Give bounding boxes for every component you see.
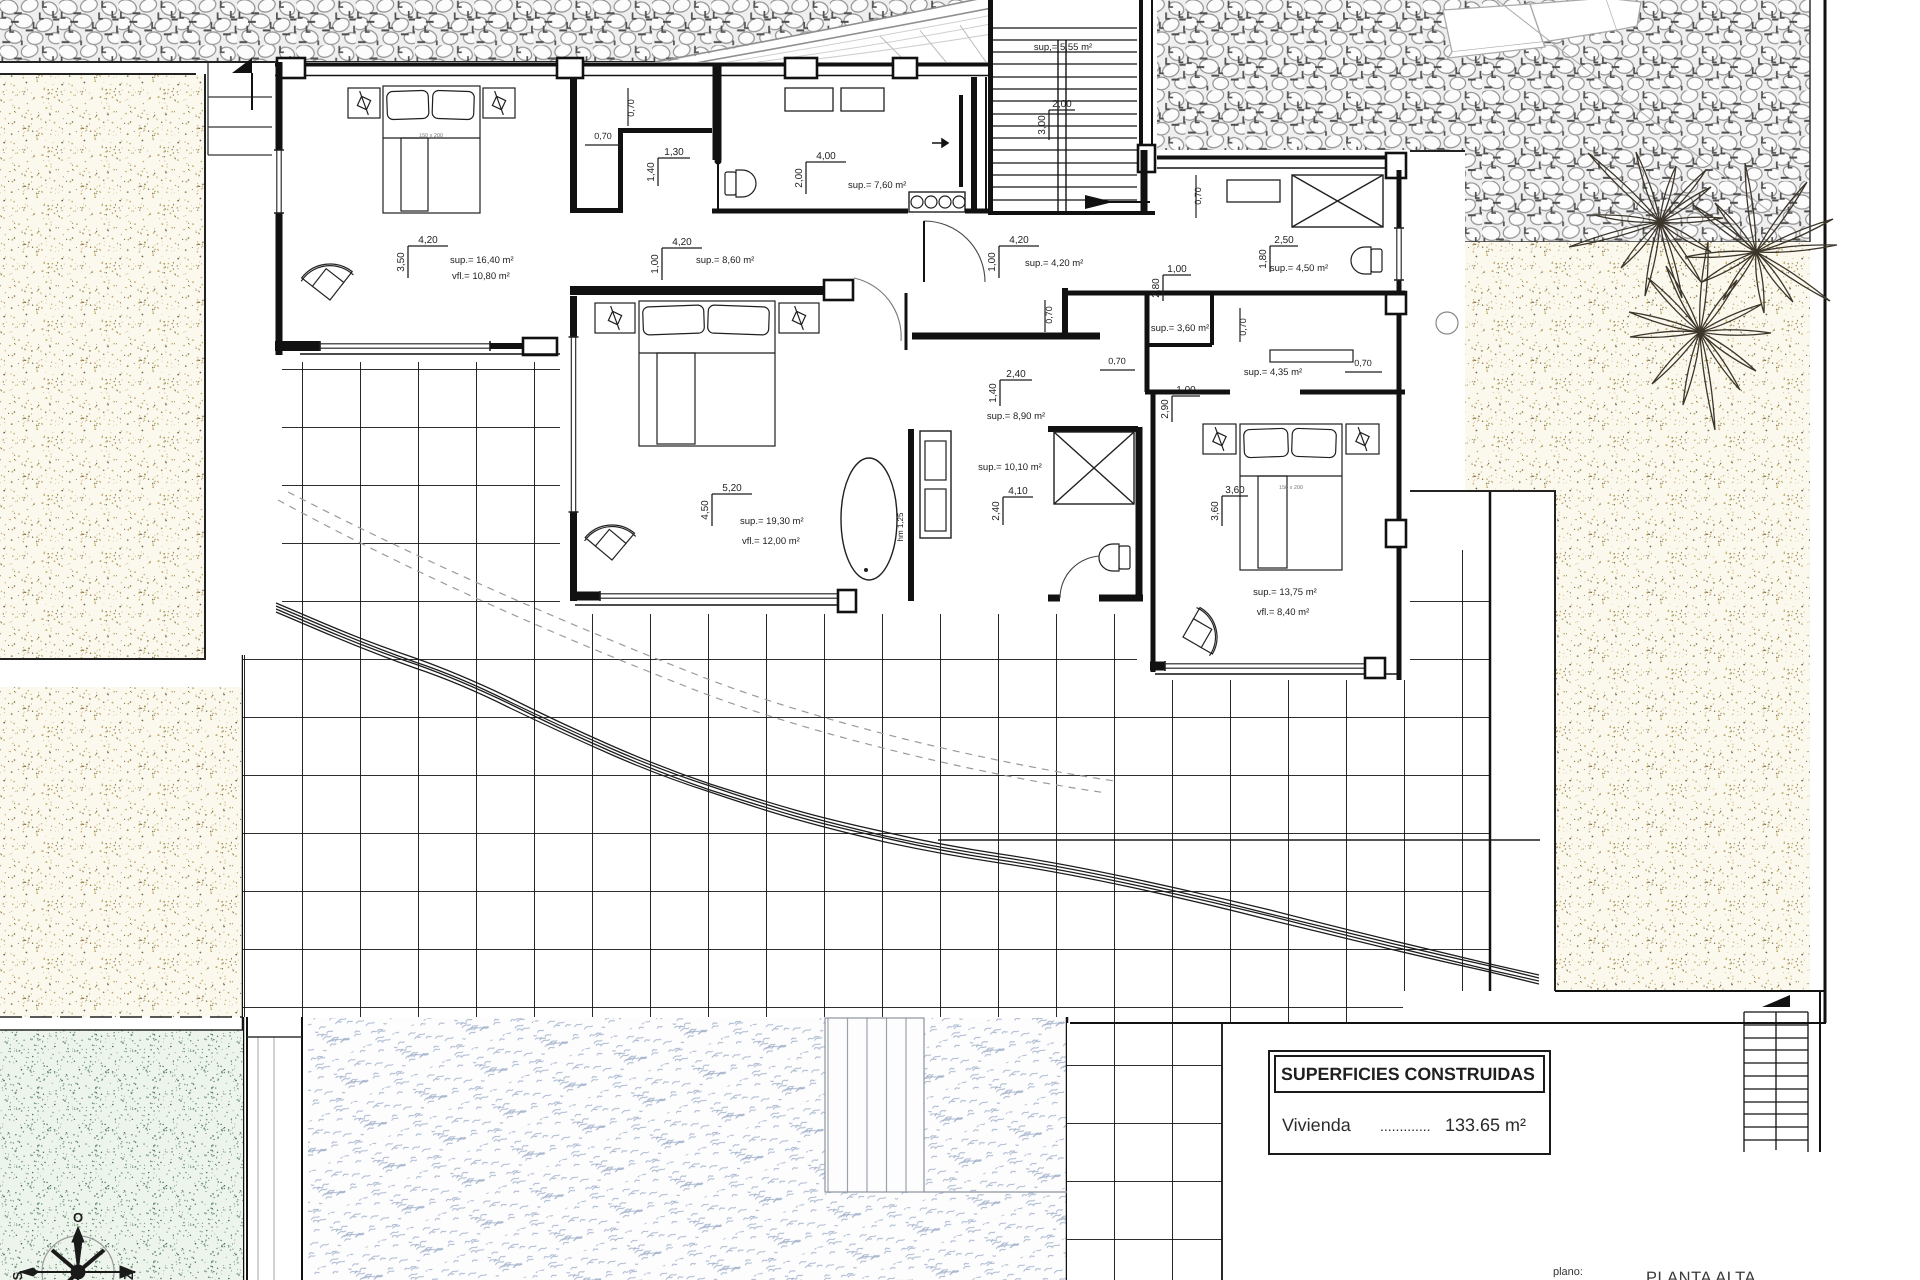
svg-text:133.65 m²: 133.65 m² <box>1445 1115 1526 1135</box>
svg-text:2,90: 2,90 <box>1160 399 1171 419</box>
svg-text:plano:: plano: <box>1553 1266 1583 1278</box>
svg-text:4,20: 4,20 <box>1009 235 1029 246</box>
svg-text:sup.= 10,10 m²: sup.= 10,10 m² <box>978 462 1042 473</box>
svg-text:sup.= 4,35 m²: sup.= 4,35 m² <box>1244 367 1302 378</box>
svg-text:SUPERFICIES CONSTRUIDAS: SUPERFICIES CONSTRUIDAS <box>1281 1064 1535 1084</box>
svg-text:0,70: 0,70 <box>1108 356 1126 366</box>
svg-text:0,70: 0,70 <box>1193 187 1203 205</box>
svg-text:1,30: 1,30 <box>664 147 684 158</box>
svg-text:sup,= 5,55 m²: sup,= 5,55 m² <box>1034 42 1092 53</box>
svg-text:150 x 200: 150 x 200 <box>1279 485 1303 491</box>
svg-text:sup.= 13,75 m²: sup.= 13,75 m² <box>1253 587 1317 598</box>
svg-text:2,00: 2,00 <box>1052 99 1072 110</box>
svg-text:vfl.= 8,40 m²: vfl.= 8,40 m² <box>1257 607 1310 618</box>
svg-text:sup.= 8,90 m²: sup.= 8,90 m² <box>987 411 1045 422</box>
svg-text:sup.= 8,60 m²: sup.= 8,60 m² <box>696 255 754 266</box>
svg-text:.............: ............. <box>1380 1118 1431 1134</box>
svg-text:1,40: 1,40 <box>988 383 999 403</box>
svg-text:vfl.= 10,80 m²: vfl.= 10,80 m² <box>452 271 510 282</box>
svg-text:PLANTA ALTA: PLANTA ALTA <box>1646 1269 1756 1280</box>
svg-text:sup.= 4,20 m²: sup.= 4,20 m² <box>1025 258 1083 269</box>
svg-text:hm 1,25: hm 1,25 <box>896 512 905 541</box>
svg-text:Z: Z <box>121 1272 136 1280</box>
svg-text:2,40: 2,40 <box>991 501 1002 521</box>
svg-text:2,00: 2,00 <box>794 168 805 188</box>
svg-text:O: O <box>73 1210 83 1225</box>
svg-text:vfl.= 12,00 m²: vfl.= 12,00 m² <box>742 536 800 547</box>
svg-text:1,80: 1,80 <box>1258 249 1269 269</box>
svg-text:0,70: 0,70 <box>594 131 612 141</box>
svg-text:3,60: 3,60 <box>1225 485 1245 496</box>
svg-text:Vivienda: Vivienda <box>1282 1115 1352 1135</box>
svg-text:4,20: 4,20 <box>418 235 438 246</box>
svg-text:sup.= 19,30 m²: sup.= 19,30 m² <box>740 516 804 527</box>
svg-text:4,10: 4,10 <box>1008 486 1028 497</box>
svg-text:3,60: 3,60 <box>1210 501 1221 521</box>
svg-text:4,50: 4,50 <box>700 500 711 520</box>
svg-text:4,00: 4,00 <box>816 151 836 162</box>
svg-text:sup.= 7,60 m²: sup.= 7,60 m² <box>848 180 906 191</box>
svg-text:150 x 200: 150 x 200 <box>419 133 443 139</box>
svg-text:3,50: 3,50 <box>396 252 407 272</box>
svg-text:1,40: 1,40 <box>646 162 657 182</box>
svg-text:0,70: 0,70 <box>1354 358 1372 368</box>
svg-text:2,50: 2,50 <box>1274 235 1294 246</box>
svg-text:1,00: 1,00 <box>650 254 661 274</box>
svg-text:1,00: 1,00 <box>1167 264 1187 275</box>
svg-text:3,00: 3,00 <box>1037 115 1048 135</box>
svg-text:4,20: 4,20 <box>672 237 692 248</box>
svg-text:2,80: 2,80 <box>1151 278 1162 298</box>
svg-text:1,00: 1,00 <box>987 252 998 272</box>
svg-text:sup.= 16,40 m²: sup.= 16,40 m² <box>450 255 514 266</box>
svg-text:sup.= 4,50 m²: sup.= 4,50 m² <box>1270 263 1328 274</box>
svg-text:5,20: 5,20 <box>722 483 742 494</box>
svg-text:S: S <box>10 1271 25 1280</box>
svg-text:2,40: 2,40 <box>1006 369 1026 380</box>
svg-text:sup.= 3,60 m²: sup.= 3,60 m² <box>1151 323 1209 334</box>
